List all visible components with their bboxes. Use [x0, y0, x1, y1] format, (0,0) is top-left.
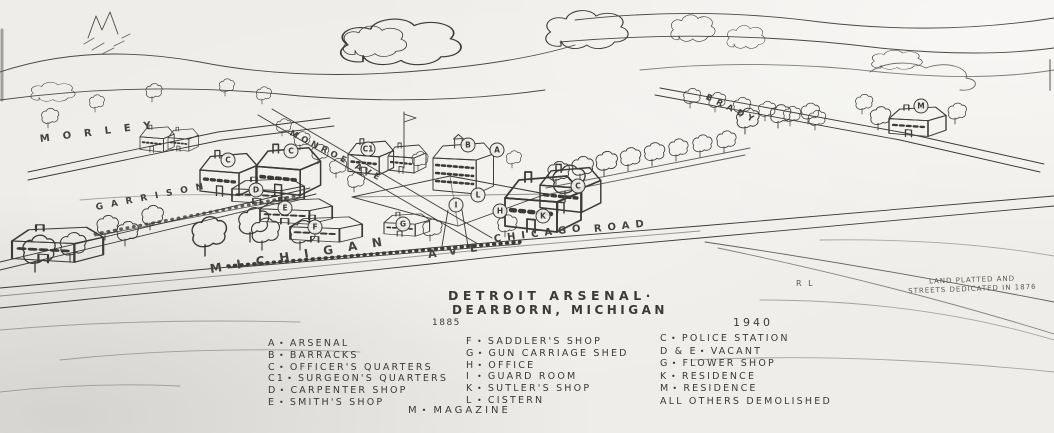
building-marker: M — [914, 99, 929, 114]
building-marker: A — [490, 143, 505, 158]
legend-row: H•OFFICE — [466, 360, 629, 372]
legend-key: D & E — [660, 346, 698, 357]
building-marker-letter: I — [455, 201, 458, 210]
year-1885: 1885 — [432, 318, 461, 328]
legend-dot: • — [279, 351, 286, 360]
building-marker: G — [396, 217, 411, 232]
legend-row: C•POLICE STATION — [660, 333, 832, 346]
building-marker-letter: E — [282, 204, 287, 213]
map-title-line1: DETROIT ARSENAL· — [448, 288, 655, 303]
foliage-masses — [31, 11, 922, 102]
building-marker-letter: F — [312, 223, 317, 232]
west-barn — [12, 225, 103, 263]
legend-dot: • — [279, 363, 286, 372]
legend-1940-col: C•POLICE STATION D & E•VACANT G•FLOWER S… — [660, 333, 832, 409]
building-marker-letter: D — [253, 186, 259, 195]
building-marker: C1 — [361, 142, 376, 157]
legend-key: I — [466, 371, 475, 382]
building-marker-letter: C — [288, 147, 294, 156]
legend-label: SADDLER'S SHOP — [488, 336, 602, 347]
building-marker: F — [308, 220, 323, 235]
legend-key: C1 — [268, 373, 285, 384]
building-marker: C — [284, 144, 299, 159]
legend-label: RESIDENCE — [683, 383, 757, 394]
legend-key: K — [466, 383, 475, 394]
legend-key: G — [466, 348, 476, 359]
legend-label: POLICE STATION — [682, 333, 790, 344]
legend-dot: • — [279, 339, 286, 348]
building-marker-letter: G — [400, 220, 406, 229]
legend-label: OFFICE — [488, 360, 535, 371]
building-marker-letter: H — [497, 207, 503, 216]
map-title-line2: DEARBORN, MICHIGAN — [452, 303, 668, 317]
legend-label: ARSENAL — [290, 338, 349, 349]
legend-dot: • — [478, 349, 485, 358]
legend-label: OFFICER'S QUARTERS — [290, 362, 433, 373]
building-marker-letter: M — [917, 102, 924, 111]
monroe-ave-road — [258, 109, 750, 244]
legend-dot: • — [700, 347, 707, 356]
legend-label: SMITH'S SHOP — [290, 397, 384, 408]
legend-row: K•RESIDENCE — [660, 371, 832, 384]
legend-dot: • — [477, 337, 484, 346]
building-marker: E — [278, 201, 293, 216]
legend-dot: • — [477, 396, 484, 405]
legend-key: H — [466, 360, 475, 371]
legend-key: M — [660, 383, 670, 394]
legend-key: M — [408, 405, 420, 416]
legend-label: ALL OTHERS DEMOLISHED — [660, 396, 832, 407]
building-marker-letter: A — [494, 146, 500, 155]
legend-key: B — [268, 350, 277, 361]
legend-row: M•MAGAZINE — [408, 405, 511, 417]
legend-row: ALL OTHERS DEMOLISHED — [660, 396, 832, 409]
legend-row: K•SUTLER'S SHOP — [466, 383, 629, 395]
detroit-arsenal-map: MORLEY GARRISON MICHIGAN AVE CHICAGO ROA… — [0, 0, 1054, 433]
legend-row: G•GUN CARRIAGE SHED — [466, 348, 629, 360]
building-marker-letter: C — [575, 182, 581, 191]
legend-dot: • — [477, 372, 484, 381]
legend-label: MAGAZINE — [433, 405, 510, 416]
building-marker-letter: C — [225, 156, 231, 165]
legend-key: F — [466, 336, 475, 347]
legend-key: G — [660, 358, 670, 369]
smiths-shop — [260, 197, 332, 224]
legend-row: A•ARSENAL — [268, 338, 448, 350]
building-marker: C — [221, 153, 236, 168]
building-marker: H — [493, 204, 508, 219]
legend-label: RESIDENCE — [682, 371, 756, 382]
legend-dot: • — [477, 361, 484, 370]
legend-label: GUARD ROOM — [488, 371, 578, 382]
legend-label: CARPENTER SHOP — [290, 385, 407, 396]
legend-dot: • — [671, 334, 678, 343]
legend-label: SUTLER'S SHOP — [488, 383, 591, 394]
artist-initials: R L — [796, 279, 815, 288]
building-marker-letter: B — [465, 141, 471, 150]
building-marker: K — [536, 209, 551, 224]
legend-key: C — [268, 362, 277, 373]
legend-dot: • — [422, 406, 430, 415]
legend-label: VACANT — [711, 346, 762, 357]
building-marker: I — [449, 198, 464, 213]
legend-row: C•OFFICER'S QUARTERS — [268, 362, 448, 374]
building-marker: D — [249, 183, 264, 198]
legend-dot: • — [671, 372, 678, 381]
legend-1885-col1: A•ARSENAL B•BARRACKS C•OFFICER'S QUARTER… — [268, 338, 448, 409]
legend-row: G•FLOWER SHOP — [660, 358, 832, 371]
legend-dot: • — [279, 398, 286, 407]
paper-smudges — [2, 30, 1050, 100]
legend-dot: • — [477, 384, 484, 393]
legend-row: I•GUARD ROOM — [466, 371, 629, 383]
legend-row: C1•SURGEON'S QUARTERS — [268, 373, 448, 385]
legend-row: D•CARPENTER SHOP — [268, 385, 448, 397]
legend-dot: • — [672, 359, 679, 368]
legend-key: E — [268, 397, 277, 408]
background-hills — [0, 12, 1054, 100]
building-marker: B — [461, 138, 476, 153]
legend-dot: • — [280, 386, 287, 395]
legend-row: F•SADDLER'S SHOP — [466, 336, 629, 348]
building-marker-letter: L — [476, 191, 481, 200]
legend-label: FLOWER SHOP — [682, 358, 776, 369]
legend-row: B•BARRACKS — [268, 350, 448, 362]
year-1940: 1940 — [733, 316, 773, 329]
legend-magazine-row: M•MAGAZINE — [408, 405, 511, 417]
legend-label: SURGEON'S QUARTERS — [298, 373, 448, 384]
legend-1885-col2: F•SADDLER'S SHOP G•GUN CARRIAGE SHED H•O… — [466, 336, 629, 407]
legend-key: A — [268, 338, 277, 349]
building-marker: L — [471, 188, 486, 203]
legend-row: D & E•VACANT — [660, 346, 832, 359]
saddlers-shop — [290, 215, 362, 242]
building-marker: C — [571, 179, 586, 194]
legend-dot: • — [672, 384, 679, 393]
legend-key: C — [660, 333, 669, 344]
legend-label: BARRACKS — [290, 350, 359, 361]
building-marker-letter: K — [540, 212, 546, 221]
legend-key: D — [268, 385, 278, 396]
building-marker-letter: C1 — [363, 145, 374, 154]
legend-key: K — [660, 371, 669, 382]
legend-label: GUN CARRIAGE SHED — [488, 348, 628, 359]
legend-row: M•RESIDENCE — [660, 383, 832, 396]
legend-dot: • — [287, 374, 294, 383]
